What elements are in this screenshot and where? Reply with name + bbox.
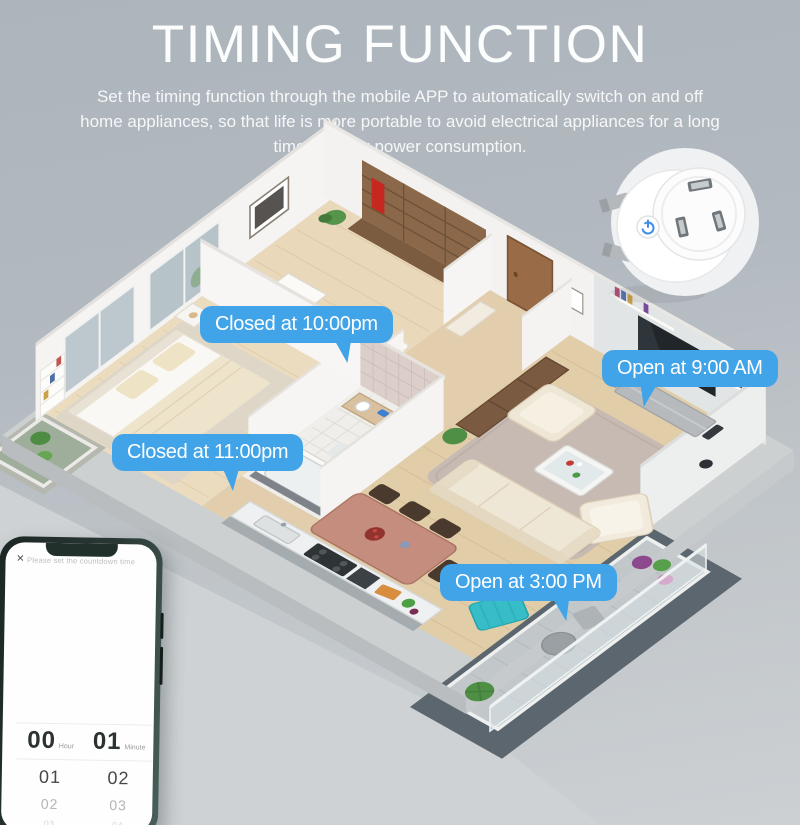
callout-label: Closed at 11:00pm	[127, 441, 288, 463]
callout-label: Open at 3:00 PM	[455, 571, 602, 593]
smart-plug	[599, 148, 759, 303]
minute-selected: 01	[93, 728, 122, 755]
minute-option[interactable]: 04	[83, 813, 152, 825]
callout-open-9am: Open at 9:00 AM	[602, 350, 778, 387]
hour-option[interactable]: 01	[16, 759, 85, 788]
countdown-instruction: Please set the countdown time	[6, 555, 157, 567]
minute-label: Minute	[124, 744, 145, 751]
callout-open-3pm: Open at 3:00 PM	[440, 564, 617, 601]
hour-column[interactable]: 00Hour	[16, 726, 85, 755]
hour-label: Hour	[59, 743, 74, 750]
hour-selected: 00	[27, 727, 56, 754]
countdown-picker[interactable]: 00Hour 01Minute 01 02 02 03 03 04	[1, 722, 154, 825]
minute-option[interactable]: 02	[84, 761, 153, 790]
callout-label: Open at 9:00 AM	[617, 357, 763, 379]
marketing-banner: TIMING FUNCTION Set the timing function …	[0, 0, 800, 825]
callout-closed-11pm: Closed at 11:00pm	[112, 434, 303, 471]
volume-button	[160, 613, 163, 639]
callout-label: Closed at 10:00pm	[215, 313, 378, 335]
minute-column[interactable]: 01Minute	[85, 728, 154, 757]
picker-row[interactable]: 03 04	[15, 811, 152, 825]
phone-notch	[45, 543, 117, 557]
minute-option[interactable]: 03	[84, 789, 153, 814]
picker-row[interactable]: 01 02	[16, 759, 153, 789]
phone-mockup: × Please set the countdown time 00Hour 0…	[0, 536, 163, 825]
picker-row[interactable]: 02 03	[15, 787, 152, 813]
hour-option[interactable]: 02	[15, 787, 84, 812]
picker-selected-row[interactable]: 00Hour 01Minute	[16, 722, 154, 761]
hour-option[interactable]: 03	[15, 811, 84, 825]
callout-closed-10pm: Closed at 10:00pm	[200, 306, 393, 343]
phone-screen: × Please set the countdown time 00Hour 0…	[1, 542, 157, 825]
